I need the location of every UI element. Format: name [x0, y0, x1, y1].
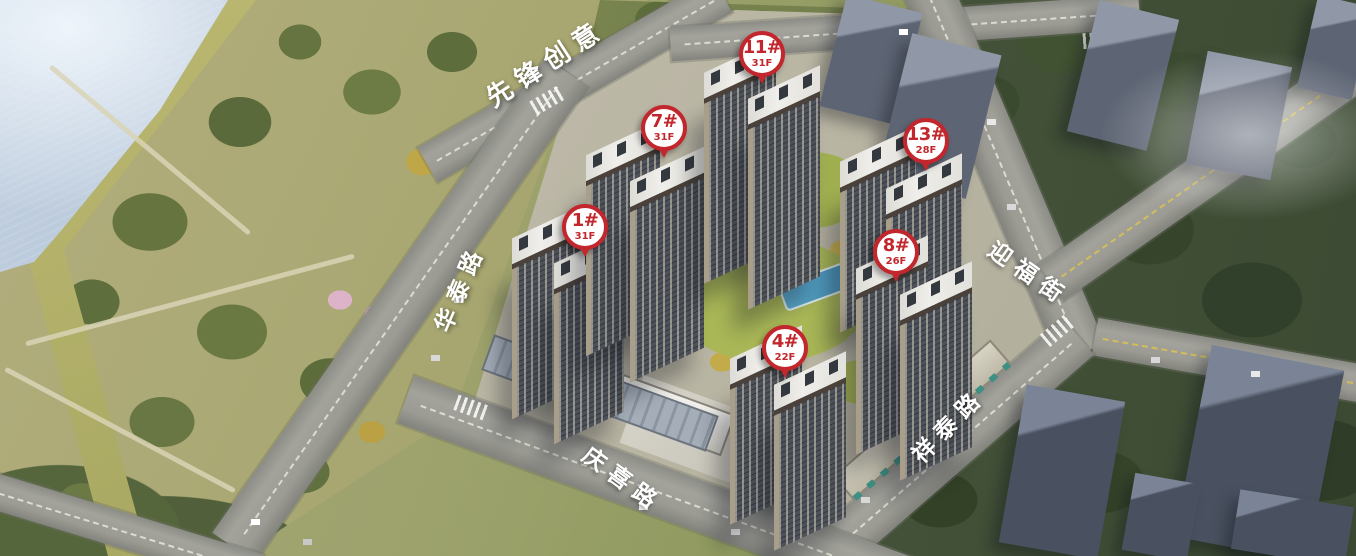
pin-bubble: 13# 28F [903, 118, 949, 164]
traffic-dots [0, 0, 7, 4]
aerial-site-plan: 先锋创意 华泰路 迎福街 祥泰路 庆喜路 1# 31F 4# 22F 7# 31… [0, 0, 1356, 556]
pin-bubble: 8# 26F [873, 229, 919, 275]
pin-floor-count: 28F [916, 146, 937, 156]
pin-building-number: 7# [651, 113, 678, 131]
pin-bubble: 11# 31F [739, 31, 785, 77]
building-pin-8[interactable]: 8# 26F [873, 229, 919, 282]
tower-slab [774, 351, 846, 551]
pin-floor-count: 31F [654, 133, 675, 143]
building-pin-13[interactable]: 13# 28F [903, 118, 949, 171]
tower-slab [630, 147, 704, 383]
building-pin-4[interactable]: 4# 22F [762, 325, 808, 378]
pin-bubble: 1# 31F [562, 204, 608, 250]
pin-building-number: 11# [743, 39, 782, 57]
tower-facade [748, 96, 820, 310]
building-pin-7[interactable]: 7# 31F [641, 105, 687, 158]
building-pin-1[interactable]: 1# 31F [562, 204, 608, 257]
pin-building-number: 1# [572, 212, 599, 230]
pin-building-number: 4# [772, 333, 799, 351]
tower-slab [748, 65, 820, 310]
pin-floor-count: 31F [752, 59, 773, 69]
pin-bubble: 7# 31F [641, 105, 687, 151]
pin-bubble: 4# 22F [762, 325, 808, 371]
pin-floor-count: 26F [886, 257, 907, 267]
tower-facade [630, 178, 704, 383]
pin-building-number: 8# [883, 237, 910, 255]
building-pin-11[interactable]: 11# 31F [739, 31, 785, 84]
pin-floor-count: 22F [775, 353, 796, 363]
pin-building-number: 13# [907, 126, 946, 144]
pin-floor-count: 31F [575, 232, 596, 242]
context-block [1122, 473, 1201, 556]
